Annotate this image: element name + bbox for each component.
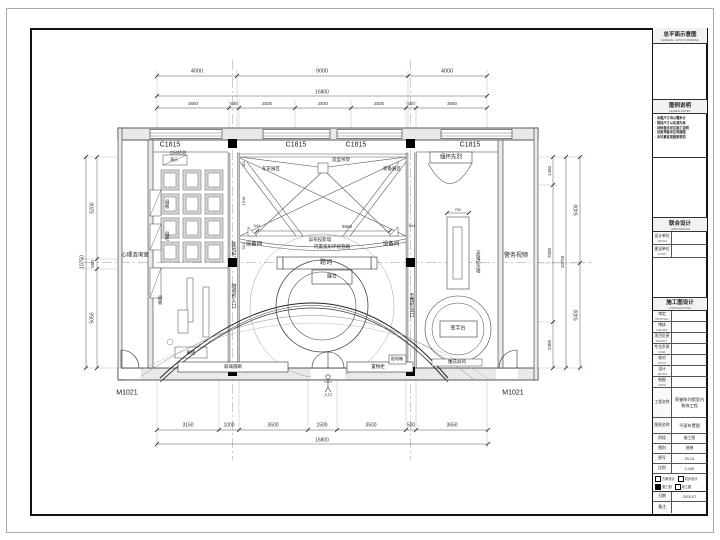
- sign-en: CHECKED: [656, 328, 668, 331]
- client-unit-row: 建设单位CLIENT: [653, 245, 707, 258]
- client-unit-value: [672, 245, 707, 257]
- window-tag: C1815: [460, 142, 481, 149]
- sign-value: [672, 377, 707, 387]
- sign-row: 设计DESIGN: [653, 366, 707, 377]
- dim-label: 5566: [342, 225, 352, 230]
- sign-en: PROJECT: [656, 339, 667, 342]
- label-truss-left: 军史展区: [262, 167, 280, 172]
- label-demo: 演示: [170, 158, 178, 162]
- room-label-equipment-left: 设备间: [246, 242, 263, 248]
- meta-label: 阶段: [658, 436, 666, 441]
- meta-row: 阶段 施工图: [653, 434, 707, 444]
- door-tag: M1021: [502, 390, 523, 397]
- sign-label: 审定: [658, 312, 666, 317]
- dim-label: 500: [230, 102, 238, 107]
- dim-label: 10750: [561, 256, 566, 269]
- client-unit-label: 建设单位: [654, 247, 669, 252]
- sign-value: [672, 333, 707, 343]
- titleblock-header: 总平面示意图 GENERAL LAYOUT DRAWING: [653, 28, 707, 44]
- sheet-title-en: GENERAL LAYOUT DRAWING: [661, 38, 699, 42]
- sign-en: DESIGN: [657, 372, 666, 375]
- door-tag: M1021: [116, 390, 137, 397]
- label-surround-sound: 内置弧形环绕音箱: [314, 245, 350, 250]
- cad-drawing-sheet: C1815 C1815 C1815 C1815 M1021 M1021 4000…: [0, 0, 720, 540]
- label-low-cabinet: 展柜: [187, 351, 196, 356]
- legend-title-en: LEGEND NOTES: [669, 109, 690, 113]
- dim-label: 5050: [91, 312, 96, 323]
- sign-row: 制图DRAW: [653, 377, 707, 388]
- dim-label: 4000: [191, 69, 203, 75]
- remark-label: 备注: [658, 505, 666, 510]
- project-name-row: 工程名称 荣誉陈列馆室内装饰工程: [653, 388, 707, 418]
- sign-row: 校对PROOF: [653, 355, 707, 366]
- meta-label: 比例: [658, 466, 666, 471]
- label-pentagon-exit: 五角形出口: [409, 293, 414, 318]
- dim-label: 451: [242, 161, 246, 168]
- checkbox-icon: [678, 476, 684, 482]
- room-label-video: 警务视频: [504, 253, 528, 259]
- project-label: 工程名称: [654, 400, 669, 405]
- checkbox-icon: [655, 476, 661, 482]
- sign-value: [672, 322, 707, 332]
- legend-title: 图例说明: [669, 101, 691, 109]
- dim-label: 1618: [242, 197, 246, 206]
- checkbox-label: 竣工图: [682, 484, 692, 489]
- label-board-2: 展柜: [165, 232, 170, 241]
- title-block: 总平面示意图 GENERAL LAYOUT DRAWING 图例说明 LEGEN…: [652, 28, 707, 514]
- client-unit-en: CLIENT: [658, 252, 666, 255]
- stage-title: 施工图设计: [666, 298, 694, 306]
- joint-design-title: 联合设计: [669, 219, 691, 227]
- label-entrance: 入口: [324, 393, 332, 397]
- meta-row: 图号 JS-01: [653, 454, 707, 464]
- checkbox-option: 施工图: [655, 484, 672, 490]
- checkbox-label: 施工图: [662, 484, 672, 489]
- dim-label: 3650: [188, 102, 198, 107]
- dim-label: 750: [455, 208, 462, 212]
- drawing-type-checkboxes: 方案设计 初步设计 施工图 竣工图: [653, 474, 707, 492]
- joint-design-title-en: JOINT DESIGN: [671, 227, 690, 231]
- dim-label: 10750: [81, 255, 86, 269]
- sign-row: 项目负责PROJECT: [653, 333, 707, 344]
- dim-label: 3650: [446, 424, 457, 429]
- label-shelf: 置物柜: [371, 365, 385, 370]
- sign-value: [672, 344, 707, 354]
- design-unit-en: DESIGN: [657, 239, 666, 242]
- room-label-equipment-right: 设备间: [383, 242, 400, 248]
- sign-row: 审定APPROVED: [653, 311, 707, 322]
- label-truss-center: 造型吊架: [332, 158, 350, 163]
- note-line: · 未尽事宜按国家规范: [655, 135, 705, 140]
- drawing-name-label: 图纸名称: [654, 423, 669, 428]
- titleblock-spacer: [653, 158, 707, 218]
- dim-label: 2835: [262, 102, 272, 107]
- meta-value: 1:100: [672, 464, 707, 473]
- label-signing-table: 签字台: [450, 327, 465, 332]
- sign-en: DRAW: [658, 383, 665, 386]
- sign-label: 项目负责: [654, 334, 669, 339]
- dim-label: 500: [91, 260, 96, 268]
- dim-label: 5400: [575, 204, 580, 215]
- joint-design-header: 联合设计 JOINT DESIGN: [653, 218, 707, 232]
- label-electric-box: 配电箱: [391, 357, 403, 361]
- drawing-name-value: 平面布置图: [672, 418, 707, 433]
- dim-label: 3500: [267, 424, 278, 429]
- titleblock-spacer: [653, 258, 707, 298]
- stage-header: 施工图设计 CONSTRUCTION: [653, 298, 707, 311]
- dim-label: 3650: [447, 102, 457, 107]
- dim-label: 544: [409, 224, 416, 228]
- dim-label: 7000: [548, 248, 553, 258]
- window-tag: C1815: [160, 142, 181, 149]
- label-board-1: 展板: [165, 200, 170, 209]
- legend-header: 图例说明 LEGEND NOTES: [653, 100, 707, 114]
- dim-label: 1500: [316, 424, 327, 429]
- checkbox-option: 竣工图: [675, 484, 692, 490]
- dim-label: 16800: [315, 439, 329, 444]
- remark-row: 备注: [653, 502, 707, 513]
- drawing-frame: [30, 28, 708, 516]
- dim-label: 16800: [315, 91, 329, 96]
- dim-label: 500: [407, 102, 415, 107]
- label-truss-right: 装备展区: [383, 167, 401, 172]
- sign-label: 审核: [658, 323, 666, 328]
- label-stage: 展台: [327, 275, 337, 280]
- meta-value: JS-01: [672, 454, 707, 463]
- checkbox-label: 方案设计: [662, 476, 675, 481]
- sign-label: 设计: [658, 367, 666, 372]
- label-martyrs: 缅怀先烈: [440, 155, 462, 161]
- checkbox-icon-checked: [655, 484, 661, 490]
- label-projection-wall: 异形投影墙: [309, 238, 332, 243]
- date-value: 2015.07: [672, 492, 707, 501]
- design-unit-row: 设计单位DESIGN: [653, 232, 707, 245]
- design-unit-label: 设计单位: [654, 234, 669, 239]
- label-glass-partition: 玻璃隔断: [224, 365, 242, 370]
- sign-value: [672, 366, 707, 376]
- meta-value: 装施: [672, 444, 707, 453]
- sheet-title: 总平面示意图: [663, 30, 696, 38]
- label-tunnel-entrance: 隧道形入口: [231, 284, 236, 309]
- sign-row: 专业负责CHIEF: [653, 344, 707, 355]
- label-auto-detect: 自动检测: [170, 151, 186, 155]
- sign-label: 专业负责: [654, 345, 669, 350]
- checkbox-icon: [675, 484, 681, 490]
- sign-en: APPROVED: [655, 317, 668, 320]
- dim-label: 3150: [182, 424, 193, 429]
- sign-label: 制图: [658, 378, 666, 383]
- meta-row: 图别 装施: [653, 444, 707, 454]
- meta-label: 图号: [658, 456, 666, 461]
- sign-value: [672, 311, 707, 321]
- checkbox-label: 初步设计: [685, 476, 698, 481]
- checkbox-option: 方案设计: [655, 476, 675, 482]
- sign-label: 校对: [658, 356, 666, 361]
- dim-label: 2835: [374, 102, 384, 107]
- notes-block: · 本图尺寸均以毫米计 · 现场尺寸以实测为准 · 材料做法详见施工说明 · 设…: [653, 114, 707, 158]
- dim-label: 544: [254, 224, 261, 228]
- meta-row: 比例 1:100: [653, 464, 707, 474]
- remark-value: [672, 502, 707, 513]
- drawing-name-row: 图纸名称 平面布置图: [653, 418, 707, 434]
- window-tag: C1815: [286, 142, 307, 149]
- meta-value: 施工图: [672, 434, 707, 443]
- design-unit-value: [672, 232, 707, 244]
- dim-label: 2830: [318, 102, 328, 107]
- label-board-3: 展板: [158, 296, 163, 305]
- date-row: 日期 2015.07: [653, 492, 707, 502]
- dim-label: 9000: [316, 69, 328, 75]
- label-carved-screen: 雕花屏风: [448, 360, 466, 365]
- dim-label: 1000: [223, 424, 234, 429]
- stage-title-en: CONSTRUCTION: [669, 306, 691, 310]
- dim-label: 4000: [441, 69, 453, 75]
- project-value: 荣誉陈列馆室内装饰工程: [672, 388, 707, 417]
- window-tag: C1815: [346, 142, 367, 149]
- dim-label: 5200: [91, 202, 96, 213]
- sign-en: PROOF: [658, 361, 666, 364]
- dim-label: 1450: [548, 166, 553, 176]
- checkbox-option: 初步设计: [678, 476, 698, 482]
- label-display-cabinet: 陈列柜: [231, 242, 236, 257]
- dim-label: 3500: [365, 424, 376, 429]
- meta-label: 图别: [658, 446, 666, 451]
- sign-en: CHIEF: [658, 350, 665, 353]
- room-label-counseling: 心理咨询室: [121, 253, 149, 259]
- label-inscription: 题词: [320, 260, 332, 266]
- dim-label: 2300: [548, 340, 553, 350]
- dim-label: 500: [407, 424, 415, 429]
- label-hero-wall: 英雄纪念墙: [476, 251, 481, 274]
- dim-label: 5400: [575, 309, 580, 320]
- titleblock-spacer: [653, 44, 707, 100]
- sign-row: 审核CHECKED: [653, 322, 707, 333]
- sign-value: [672, 355, 707, 365]
- date-label: 日期: [658, 494, 666, 499]
